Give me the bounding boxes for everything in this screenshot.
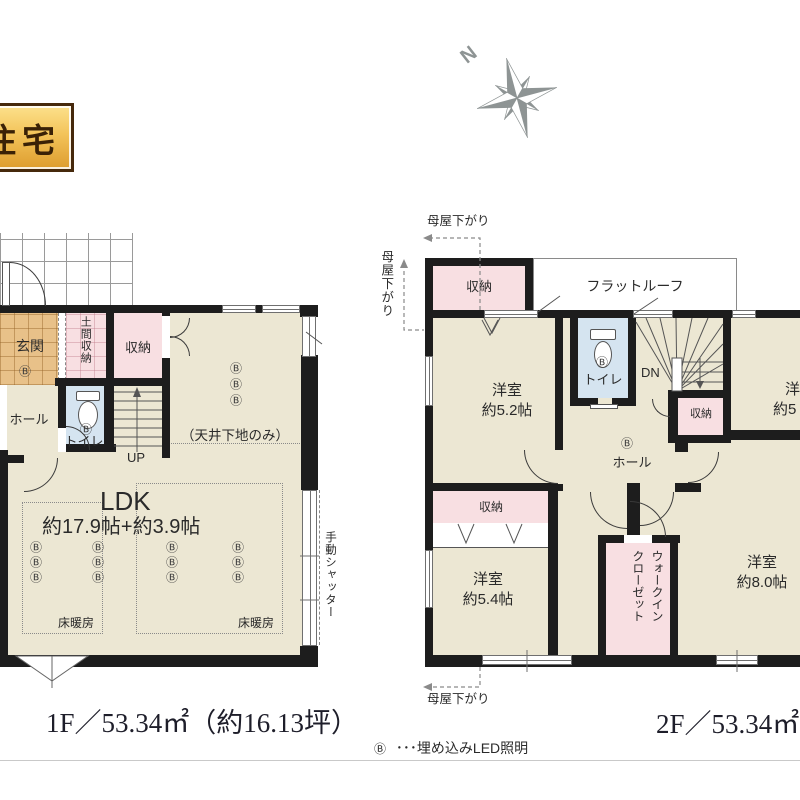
led-marker-icon: Ⓑ — [621, 435, 633, 452]
wall — [55, 378, 170, 386]
wall — [525, 258, 533, 314]
toilet-door-leaf — [590, 404, 618, 409]
legend: Ⓑ ･･･埋め込みLED照明 — [374, 739, 528, 758]
badge-label: 住宅 — [0, 114, 61, 162]
floor-plan-page: 住宅 — [0, 0, 800, 800]
led-marker-icon: Ⓑ — [80, 421, 92, 438]
window — [732, 310, 756, 318]
wic-label: ウォークイン クローゼット — [610, 550, 666, 650]
room-label-hall-1f: ホール — [2, 412, 56, 429]
wic-line2: クローゼット — [628, 550, 647, 650]
moyasagari-label-top: 母屋下がり — [427, 213, 490, 229]
room-label-genkan: 玄関 — [6, 337, 54, 355]
window — [482, 655, 572, 665]
led-marker-icon: Ⓑ — [230, 392, 242, 409]
wall — [570, 310, 578, 406]
floor-heating-label: 床暖房 — [238, 616, 274, 632]
led-marker-icon: Ⓑ — [596, 354, 608, 371]
room-label-ne: 洋室 約5 — [773, 380, 800, 419]
wall — [0, 450, 8, 667]
led-marker-icon: Ⓑ — [19, 363, 31, 380]
room-name: 洋室 — [773, 380, 800, 400]
window — [302, 316, 316, 357]
room-label-sw: 洋室 約5.4帖 — [428, 570, 548, 609]
room-label-hall-2f: ホール — [597, 455, 667, 472]
floor-heating-zone-2 — [136, 483, 283, 634]
door-opening — [162, 316, 170, 358]
led-marker-icon: Ⓑ — [230, 376, 242, 393]
sliding-door — [58, 313, 66, 385]
wall — [670, 535, 678, 662]
moyasagari-label-left: 母屋下がり — [378, 250, 394, 334]
moyasagari-label-bottom: 母屋下がり — [427, 691, 490, 707]
floor2-title: 2F／53.34㎡ — [656, 707, 799, 742]
wall — [598, 535, 606, 662]
stairs-up-label: UP — [127, 450, 145, 467]
led-marker-icon: Ⓑ — [232, 569, 244, 586]
wall — [548, 483, 558, 662]
room-name: 洋室 — [428, 570, 548, 590]
room-label-closet-sw: 収納 — [461, 500, 521, 516]
ldk-size-label: 約17.9帖+約3.9帖 — [42, 514, 200, 540]
ceiling-note-label: （天井下地のみ） — [166, 427, 304, 445]
room-label-closet-annex: 収納 — [439, 279, 519, 296]
divider-line — [0, 760, 800, 761]
wall — [731, 430, 800, 440]
flat-roof-label: フラットルーフ — [533, 277, 737, 295]
room-size: 約8.0帖 — [702, 573, 800, 593]
shutter-dashed-line — [319, 490, 321, 645]
wall — [675, 483, 701, 492]
room-label-doma: 土間収納 — [78, 316, 92, 384]
floor1-title: 1F／53.34㎡（約16.13坪） — [46, 706, 358, 741]
window — [262, 305, 300, 313]
led-marker-icon: Ⓑ — [30, 569, 42, 586]
shutter-label: 手動シャッター — [322, 531, 337, 623]
wall — [0, 655, 318, 667]
window — [222, 305, 256, 313]
wall — [106, 313, 114, 386]
room-label-closet-1f: 収納 — [114, 340, 162, 357]
room-label-toilet-2f: トイレ — [580, 372, 626, 389]
wall — [675, 440, 688, 452]
wall — [58, 386, 66, 428]
window — [633, 310, 673, 318]
room-name: 洋室 — [702, 553, 800, 573]
led-marker-icon: Ⓑ — [374, 742, 386, 756]
shutter-window — [302, 490, 317, 646]
wall — [425, 258, 433, 314]
led-marker-icon: Ⓑ — [230, 360, 242, 377]
closet-hanger-zone — [433, 523, 548, 548]
room-label-se: 洋室 約8.0帖 — [702, 553, 800, 592]
room-name: 洋室 — [452, 381, 562, 401]
wall — [628, 310, 636, 406]
room-size: 約5.2帖 — [452, 401, 562, 421]
toilet-tank-icon — [76, 391, 100, 401]
floor-heating-label: 床暖房 — [58, 616, 94, 632]
room-label-closet-mid: 収納 — [679, 407, 723, 421]
wall — [301, 355, 318, 490]
led-marker-icon: Ⓑ — [92, 569, 104, 586]
wic-line1: ウォークイン — [647, 550, 666, 650]
stairs-down-label: DN — [641, 365, 660, 382]
room-size: 約5 — [773, 400, 800, 420]
room-label-nw: 洋室 約5.2帖 — [452, 381, 562, 420]
led-marker-icon: Ⓑ — [166, 569, 178, 586]
window — [716, 655, 758, 665]
legend-text: ･･･埋め込みLED照明 — [396, 740, 528, 756]
compass-north-label: N — [456, 42, 482, 69]
entrance-door-leaf — [2, 262, 10, 306]
wall — [300, 646, 318, 667]
window — [425, 356, 433, 406]
wall — [723, 310, 731, 390]
room-size: 約5.4帖 — [428, 590, 548, 610]
wall — [425, 258, 533, 266]
wall — [425, 483, 558, 491]
property-badge: 住宅 — [0, 103, 74, 172]
toilet-tank-icon — [590, 329, 616, 340]
window — [484, 310, 538, 318]
wall — [668, 390, 731, 398]
